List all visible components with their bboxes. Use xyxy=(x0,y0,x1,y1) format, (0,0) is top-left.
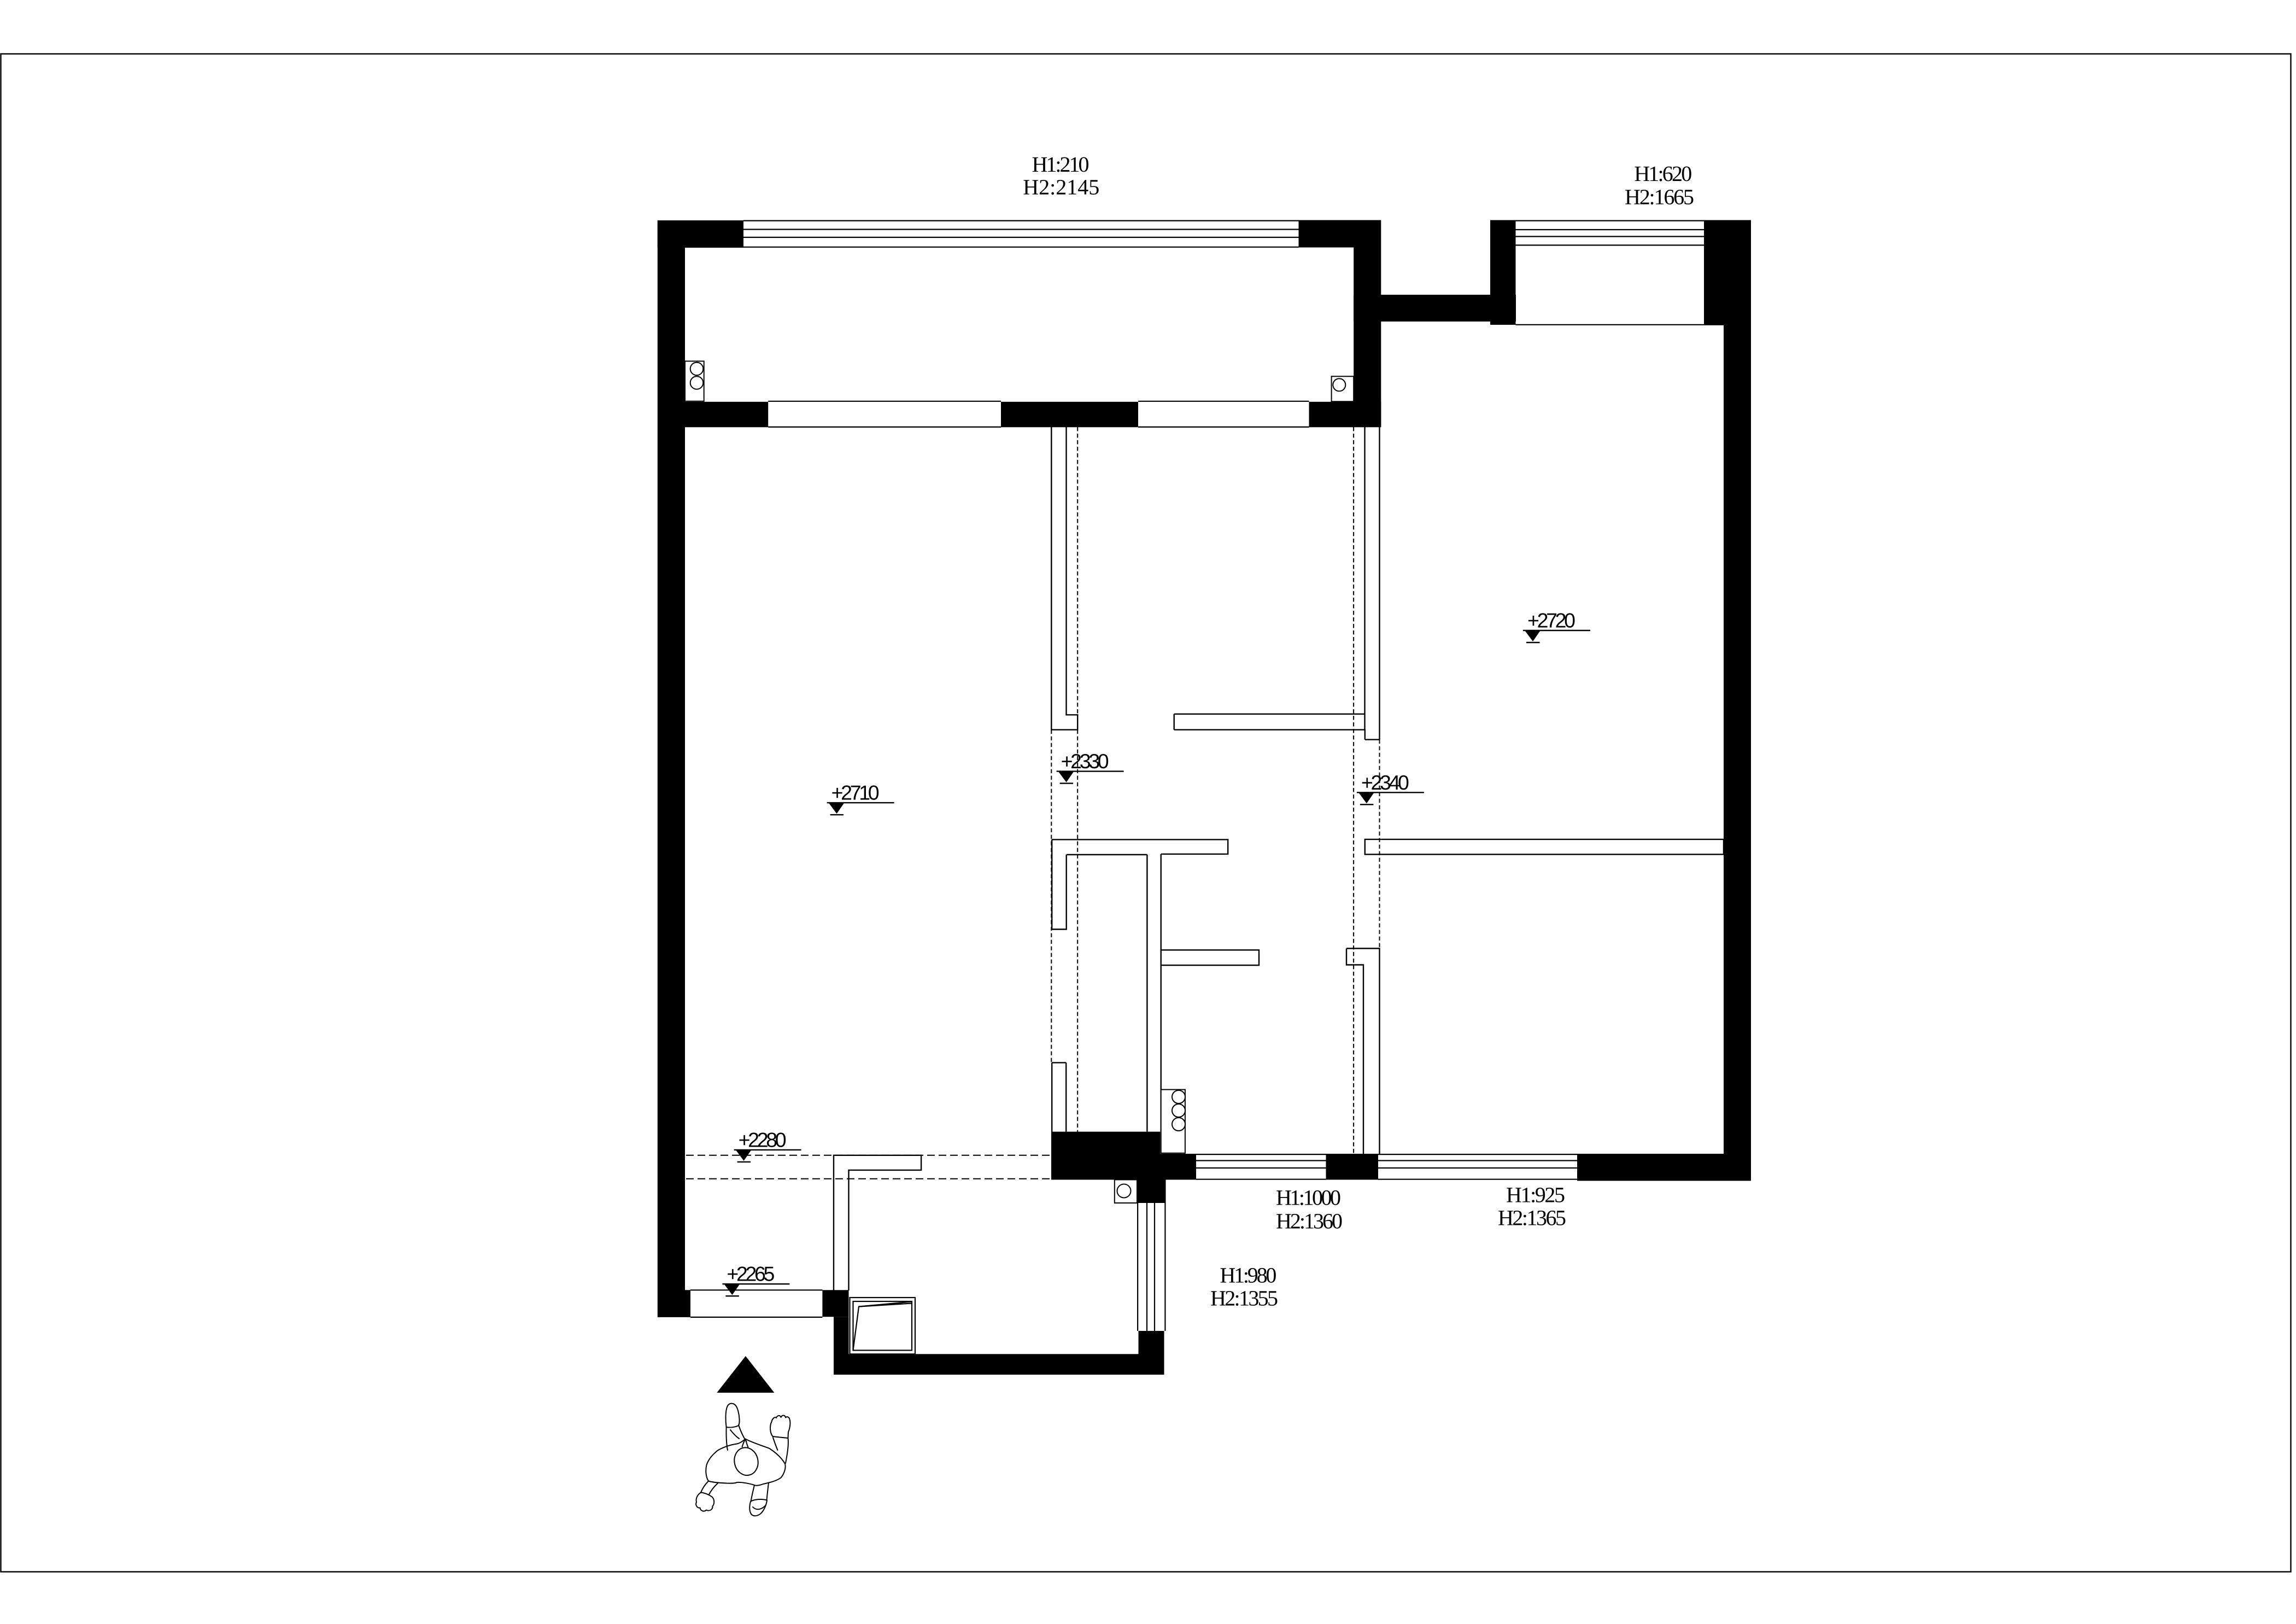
svg-text:+2265: +2265 xyxy=(727,1263,775,1286)
svg-text:H2:2145: H2:2145 xyxy=(1023,174,1099,199)
svg-text:+2340: +2340 xyxy=(1361,771,1409,794)
svg-text:H2:1665: H2:1665 xyxy=(1625,185,1694,209)
svg-text:+2280: +2280 xyxy=(739,1128,787,1151)
svg-text:H1:1000: H1:1000 xyxy=(1276,1185,1341,1210)
svg-text:H1:210: H1:210 xyxy=(1032,152,1090,177)
svg-text:+2720: +2720 xyxy=(1527,609,1575,632)
svg-text:H2:1365: H2:1365 xyxy=(1498,1206,1566,1230)
svg-text:H1:620: H1:620 xyxy=(1634,161,1692,186)
svg-text:+2330: +2330 xyxy=(1061,750,1109,773)
svg-text:H2:1360: H2:1360 xyxy=(1276,1209,1343,1234)
svg-text:H1:925: H1:925 xyxy=(1506,1183,1565,1207)
svg-text:H2:1355: H2:1355 xyxy=(1210,1286,1278,1310)
svg-text:+2710: +2710 xyxy=(831,781,880,804)
svg-text:H1:980: H1:980 xyxy=(1220,1263,1276,1288)
